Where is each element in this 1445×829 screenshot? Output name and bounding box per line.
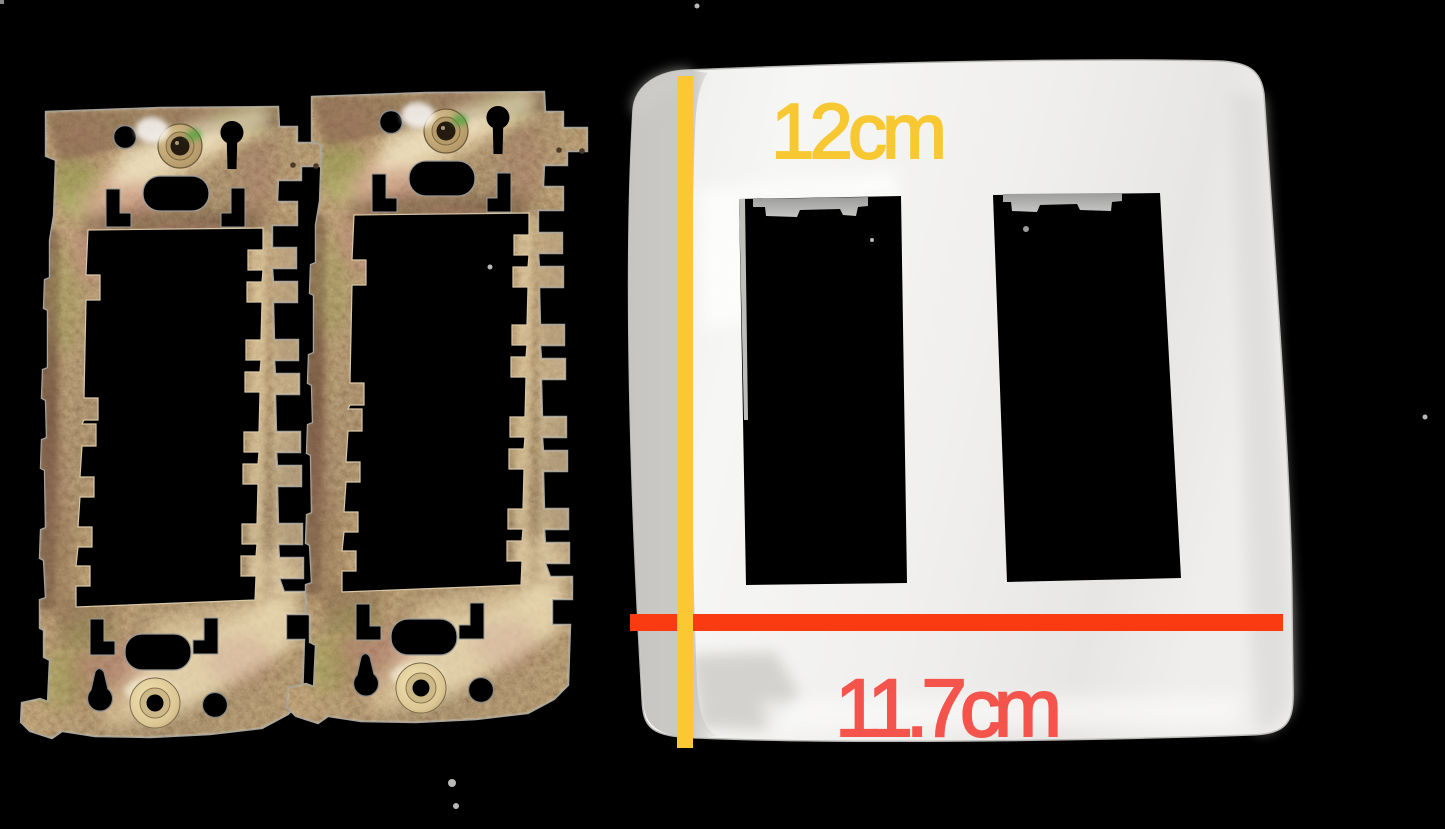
svg-text:12cm: 12cm xyxy=(771,87,947,175)
svg-text:11.7cm: 11.7cm xyxy=(835,663,1062,754)
